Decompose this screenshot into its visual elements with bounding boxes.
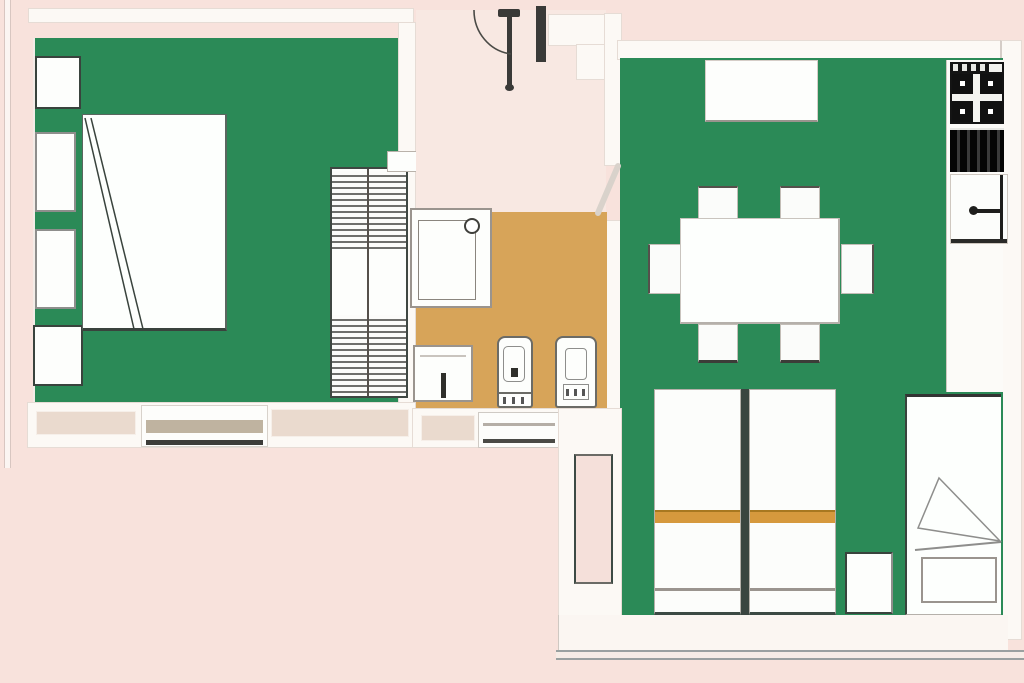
cooktop-stove <box>950 62 1004 124</box>
bed-base-line <box>750 588 835 591</box>
balcony-window <box>574 454 613 584</box>
single-bed <box>749 389 836 615</box>
entry-door-leaf-cap <box>498 9 520 17</box>
wall-panel <box>421 415 475 441</box>
living-west-wall-lower <box>558 408 622 646</box>
bidet-bowl <box>565 348 587 380</box>
dining-table <box>680 218 840 324</box>
wall-panel <box>36 411 136 435</box>
nightstand <box>35 56 81 109</box>
shower-head <box>464 218 480 234</box>
chair <box>841 244 874 294</box>
single-bed <box>654 389 741 615</box>
wall-panel <box>271 409 409 437</box>
bed-divider <box>741 389 749 615</box>
basin-edge <box>420 355 466 357</box>
chair <box>780 324 820 363</box>
bidet-ticks <box>566 389 586 396</box>
closet-shelves-bottom <box>332 315 406 396</box>
window-glass-line <box>146 440 263 445</box>
shower <box>410 208 492 308</box>
toilet-tank <box>499 392 531 405</box>
oven <box>950 128 1004 172</box>
burner-dot <box>988 109 993 114</box>
washbasin <box>413 345 473 402</box>
boundary-line <box>4 0 11 468</box>
stove-knobs <box>953 64 987 71</box>
single-bed <box>905 394 1001 615</box>
stove-chip <box>989 64 1002 72</box>
entry-door-leaf <box>507 12 512 86</box>
counter-edge <box>951 239 1007 243</box>
sideboard <box>705 60 818 122</box>
blanket-stripe <box>750 510 835 523</box>
bidet-base <box>563 384 589 400</box>
burner-dot <box>960 109 965 114</box>
burner-grid <box>952 74 1002 122</box>
sink-side-line <box>1000 175 1003 243</box>
bed-base-line <box>655 588 740 591</box>
toilet <box>497 336 533 408</box>
bidet <box>555 336 597 408</box>
closet-divider <box>367 169 369 396</box>
nightstand <box>845 552 893 614</box>
cabinet <box>35 229 76 309</box>
chair <box>698 324 738 363</box>
closet-shelves-top <box>332 171 406 249</box>
chair <box>648 244 681 294</box>
bedroom-north-wall <box>28 8 414 23</box>
sink-faucet-line <box>975 209 1003 213</box>
bathroom-window <box>478 412 560 448</box>
balcony-floor <box>558 615 1008 651</box>
entry-door-frame <box>536 6 546 62</box>
nightstand <box>33 325 83 386</box>
entry-door-hinge <box>505 84 514 91</box>
burner-dot <box>960 81 965 86</box>
tank-ticks <box>503 397 527 404</box>
window-glass-line <box>483 439 555 443</box>
chair <box>698 186 738 219</box>
shelved-closet <box>330 167 408 398</box>
window-sill-band <box>146 420 263 433</box>
kitchen-sink <box>950 174 1008 244</box>
balcony-railing <box>556 650 1024 660</box>
floor-plan-canvas <box>0 0 1024 683</box>
chair <box>780 186 820 219</box>
window-sill-band <box>483 423 555 426</box>
toilet-drain <box>511 368 518 377</box>
basin-tap <box>441 373 446 398</box>
burner-divider-v <box>973 74 980 122</box>
living-north-wall <box>617 40 1005 60</box>
double-bed <box>82 114 227 331</box>
bedroom-window <box>141 405 268 447</box>
cabinet <box>35 132 76 212</box>
blanket-stripe <box>655 510 740 523</box>
bed-pillow <box>921 557 997 603</box>
bedroom-south-wall <box>27 402 416 448</box>
burner-dot <box>988 81 993 86</box>
